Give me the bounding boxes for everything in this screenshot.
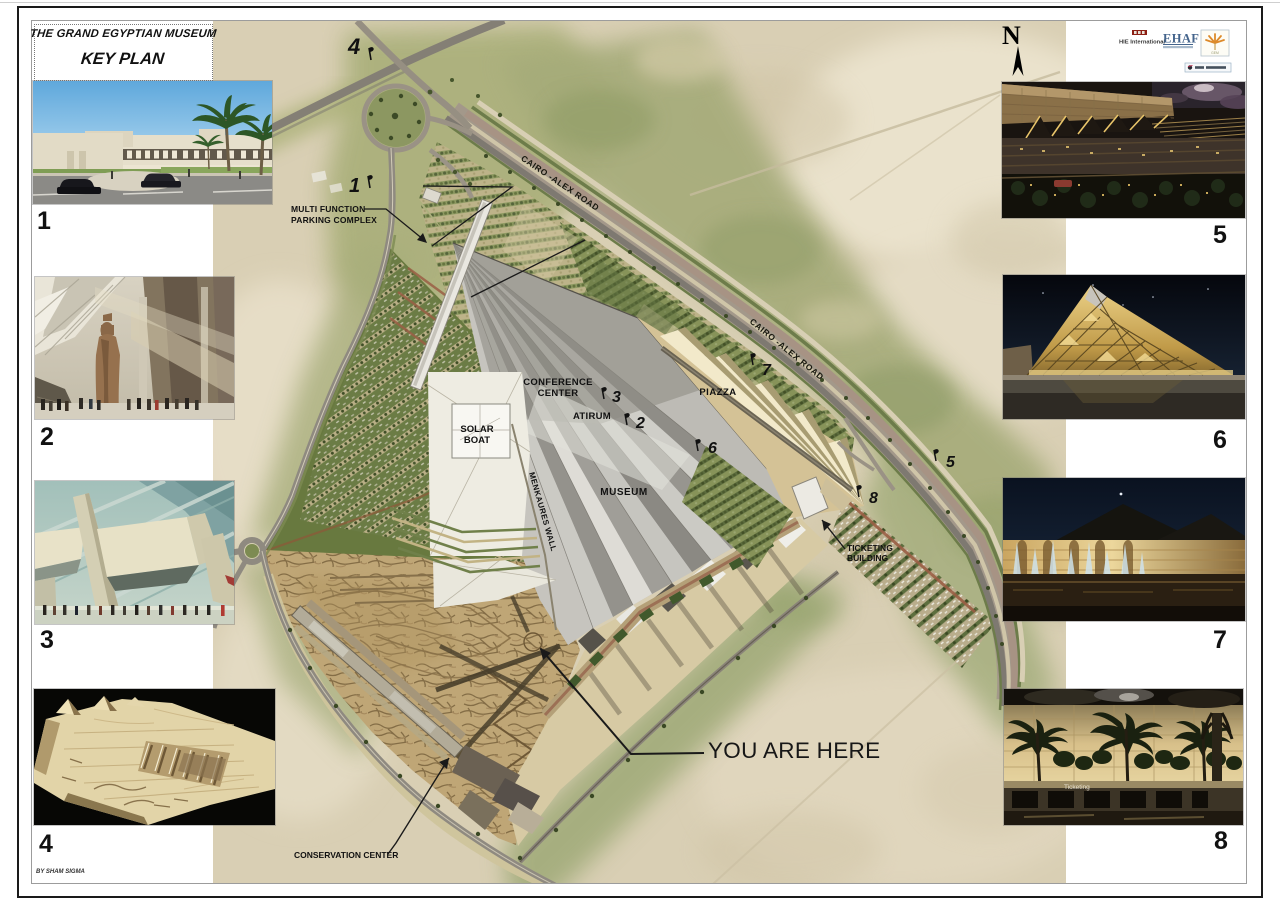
- svg-text:SOLAR: SOLAR: [460, 424, 493, 435]
- svg-text:2: 2: [635, 415, 645, 432]
- svg-text:5: 5: [946, 454, 956, 471]
- svg-text:BOAT: BOAT: [464, 435, 490, 446]
- svg-text:YOU ARE HERE: YOU ARE HERE: [708, 738, 880, 763]
- svg-text:1: 1: [349, 175, 360, 197]
- svg-text:ATIRUM: ATIRUM: [573, 411, 611, 422]
- svg-text:PARKING COMPLEX: PARKING COMPLEX: [291, 215, 377, 225]
- svg-text:8: 8: [869, 490, 878, 507]
- svg-text:7: 7: [762, 362, 772, 379]
- svg-text:TICKETING: TICKETING: [847, 543, 893, 553]
- svg-text:4: 4: [347, 34, 360, 59]
- svg-text:CENTER: CENTER: [538, 388, 579, 399]
- svg-text:CONSERVATION CENTER: CONSERVATION CENTER: [294, 850, 398, 860]
- svg-text:CONFERENCE: CONFERENCE: [523, 377, 593, 388]
- svg-text:HIE International: HIE International: [1119, 40, 1165, 46]
- svg-text:MUSEUM: MUSEUM: [600, 487, 647, 498]
- svg-text:GEM: GEM: [1211, 51, 1219, 55]
- svg-text:EHAF: EHAF: [1163, 32, 1199, 46]
- svg-text:PIAZZA: PIAZZA: [699, 387, 736, 398]
- svg-text:Ticketing: Ticketing: [1064, 784, 1090, 791]
- svg-text:3: 3: [612, 389, 621, 406]
- svg-text:6: 6: [708, 440, 717, 457]
- svg-text:MULTI FUNCTION: MULTI FUNCTION: [291, 204, 365, 214]
- svg-text:BUILDING: BUILDING: [847, 553, 888, 563]
